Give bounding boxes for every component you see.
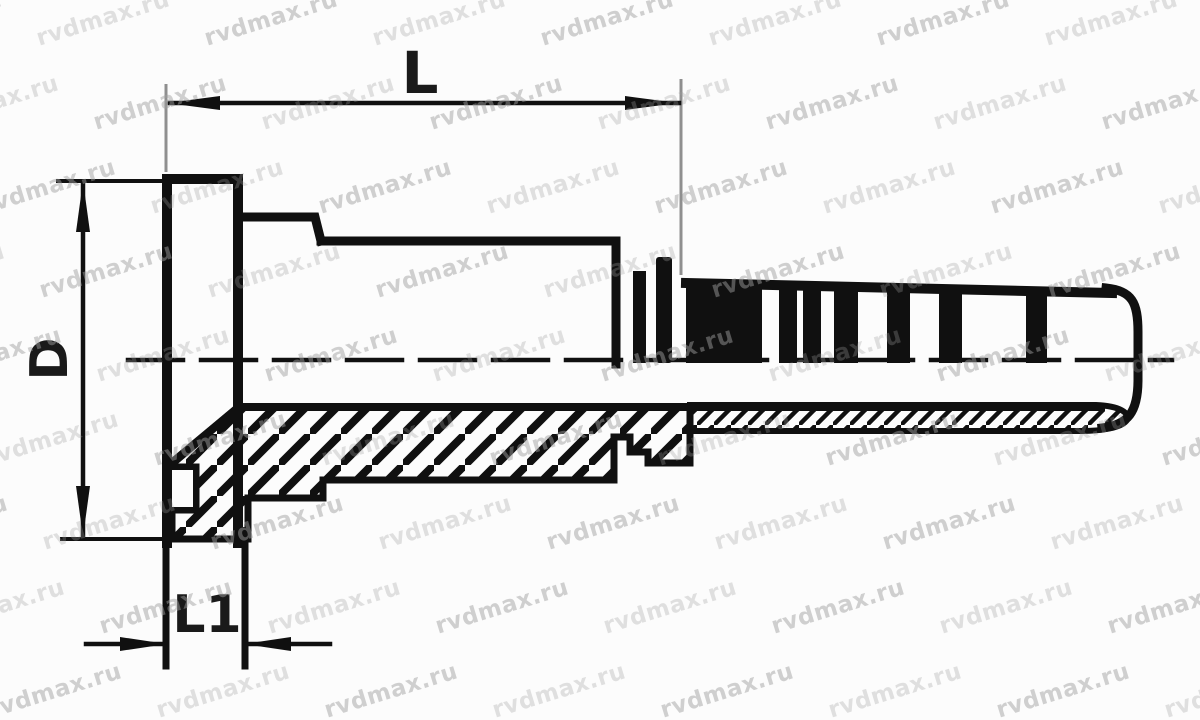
dimension-L1: L1: [86, 545, 330, 666]
barb: [1026, 291, 1047, 363]
dimension-label-L: L: [402, 39, 439, 107]
barb: [803, 287, 821, 363]
arrowhead-left-icon: [167, 96, 220, 110]
arrowhead-down-icon: [76, 486, 90, 537]
technical-drawing: L D L1: [0, 0, 1200, 720]
collar-rib: [656, 257, 672, 363]
arrowhead-up-icon: [76, 181, 90, 232]
barb: [834, 287, 858, 363]
drawing-canvas: L D L1 rvdmax.rurvdmax.rurvdmax.rurvdmax…: [0, 0, 1200, 720]
collar-rib: [633, 271, 646, 363]
flange-neck-outline: [238, 217, 321, 241]
dimension-label-L1: L1: [172, 585, 241, 645]
barb: [887, 289, 910, 363]
barb: [939, 290, 962, 363]
arrowhead-left-icon: [244, 637, 291, 651]
section-hatch-body: [172, 407, 690, 539]
o-ring-groove: [172, 467, 196, 510]
body-outline: [321, 241, 616, 364]
barb-block: [686, 280, 762, 363]
dimension-label-D: D: [20, 337, 80, 380]
section-view: [172, 405, 1128, 539]
arrowhead-right-icon: [625, 96, 678, 110]
barb: [779, 286, 797, 363]
arrowhead-right-icon: [120, 637, 167, 651]
